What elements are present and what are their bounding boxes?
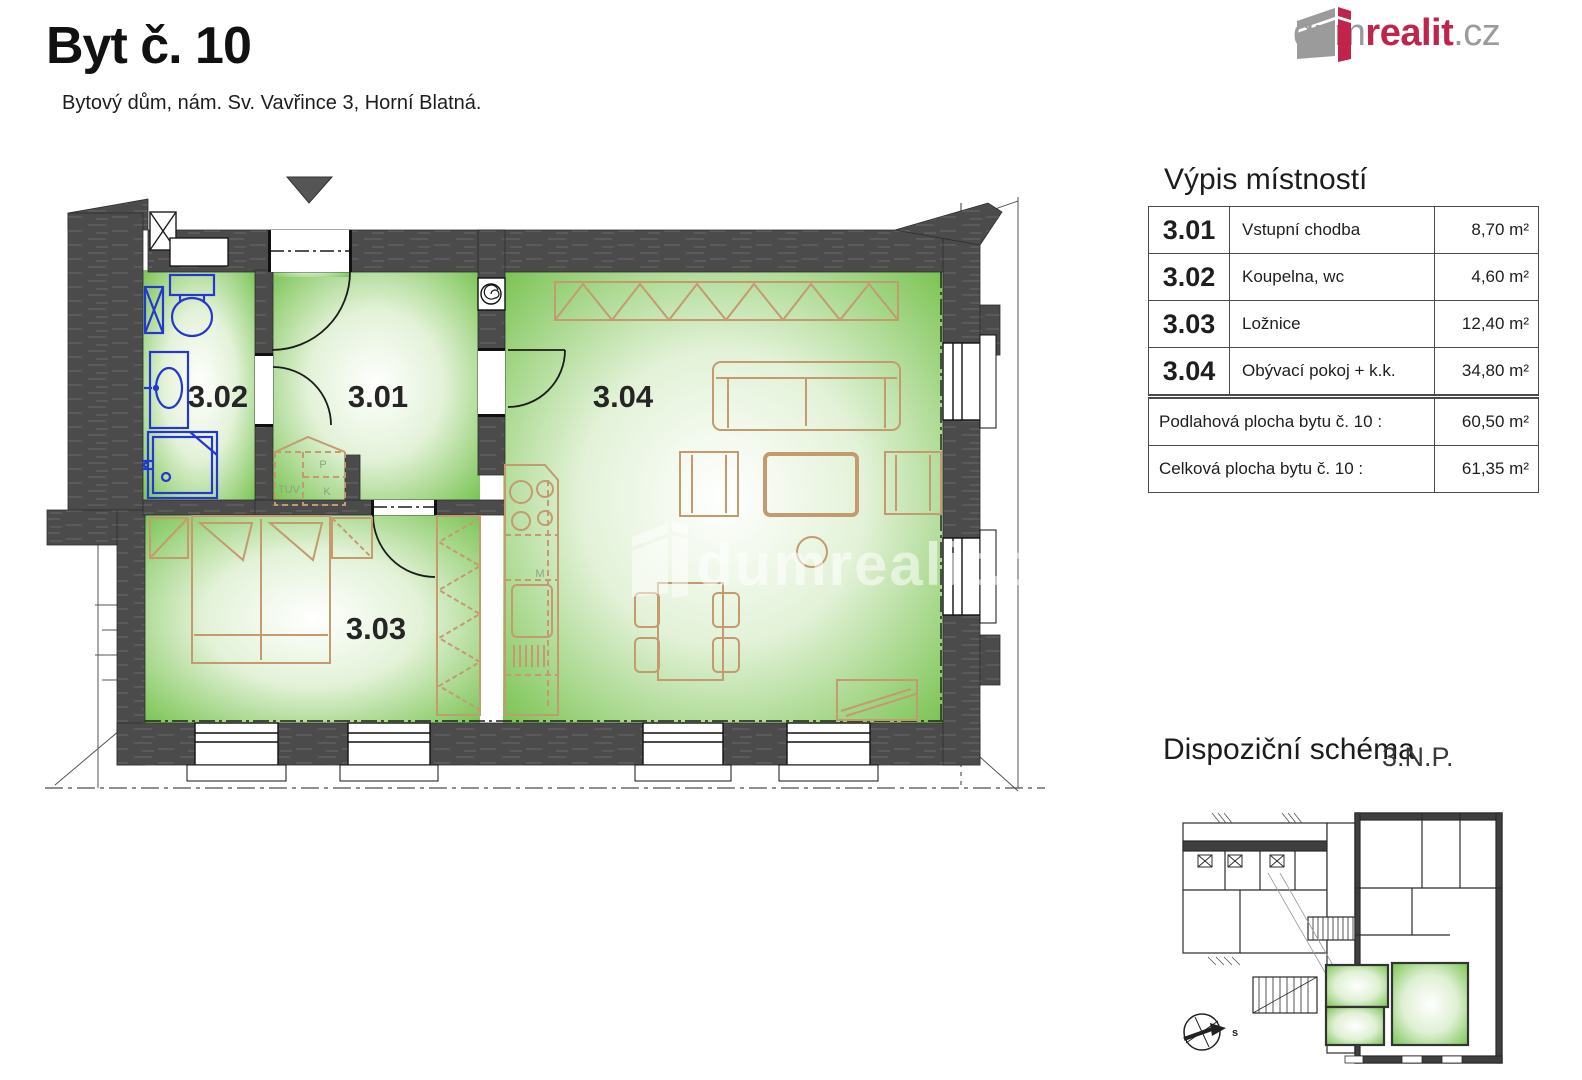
room-area: 4,60 m² xyxy=(1435,254,1539,301)
window xyxy=(187,723,286,781)
compass-label: s xyxy=(1232,1027,1238,1039)
summary-label: Podlahová plocha bytu č. 10 : xyxy=(1149,397,1435,446)
room-name: Koupelna, wc xyxy=(1230,254,1435,301)
summary-label: Celková plocha bytu č. 10 : xyxy=(1149,446,1435,493)
orientation-triangle xyxy=(287,177,332,203)
page-title: Byt č. 10 xyxy=(46,16,251,76)
room-name: Ložnice xyxy=(1230,301,1435,348)
room-table: 3.01 Vstupní chodba 8,70 m² 3.02 Koupeln… xyxy=(1148,206,1539,493)
summary-value: 60,50 m² xyxy=(1435,397,1539,446)
schema-apartment-highlight xyxy=(1326,963,1468,1045)
label-room-302: 3.02 xyxy=(188,379,248,414)
dumrealit-logo: dumrealit.cz xyxy=(1293,12,1500,55)
table-row: 3.01 Vstupní chodba 8,70 m² xyxy=(1149,207,1539,254)
label-k: K xyxy=(323,486,331,498)
window xyxy=(635,723,731,781)
logo-part-tld: .cz xyxy=(1453,12,1500,54)
logo-part-red: realit xyxy=(1365,12,1453,54)
dumrealit-building-icon xyxy=(1293,3,1353,65)
floor-plan: 3.02 3.01 3.04 3.03 TUV P K M dumrealit.… xyxy=(40,165,1050,815)
label-room-304: 3.04 xyxy=(593,379,654,414)
room-number: 3.04 xyxy=(1149,348,1230,397)
room-name: Obývací pokoj + k.k. xyxy=(1230,348,1435,397)
room-area: 8,70 m² xyxy=(1435,207,1539,254)
room-area: 34,80 m² xyxy=(1435,348,1539,397)
room-number: 3.01 xyxy=(1149,207,1230,254)
room-area: 12,40 m² xyxy=(1435,301,1539,348)
room-name: Vstupní chodba xyxy=(1230,207,1435,254)
label-p: P xyxy=(319,459,326,471)
schema-floor-label: 3.N.P. xyxy=(1382,742,1454,773)
label-room-301: 3.01 xyxy=(348,379,408,414)
room-number: 3.03 xyxy=(1149,301,1230,348)
window xyxy=(943,335,996,428)
building-schema: s xyxy=(1150,795,1550,1080)
label-kitchen-m: M xyxy=(535,568,544,580)
compass-icon xyxy=(1184,1014,1226,1050)
summary-row: Celková plocha bytu č. 10 : 61,35 m² xyxy=(1149,446,1539,493)
label-room-303: 3.03 xyxy=(346,611,406,646)
room-table-title: Výpis místností xyxy=(1164,163,1367,197)
window xyxy=(779,723,878,781)
summary-value: 61,35 m² xyxy=(1435,446,1539,493)
summary-row: Podlahová plocha bytu č. 10 : 60,50 m² xyxy=(1149,397,1539,446)
window xyxy=(340,723,438,781)
table-row: 3.03 Ložnice 12,40 m² xyxy=(1149,301,1539,348)
page-subtitle: Bytový dům, nám. Sv. Vavřince 3, Horní B… xyxy=(62,92,481,115)
schema-bottom-windows xyxy=(1345,1056,1462,1063)
table-row: 3.04 Obývací pokoj + k.k. 34,80 m² xyxy=(1149,348,1539,397)
table-row: 3.02 Koupelna, wc 4,60 m² xyxy=(1149,254,1539,301)
schema-title: Dispoziční schéma xyxy=(1163,733,1415,767)
label-tuv: TUV xyxy=(278,484,301,496)
room-number: 3.02 xyxy=(1149,254,1230,301)
watermark-text: dumrealit.cz xyxy=(696,531,1050,598)
schema-left-wing xyxy=(1183,813,1327,965)
